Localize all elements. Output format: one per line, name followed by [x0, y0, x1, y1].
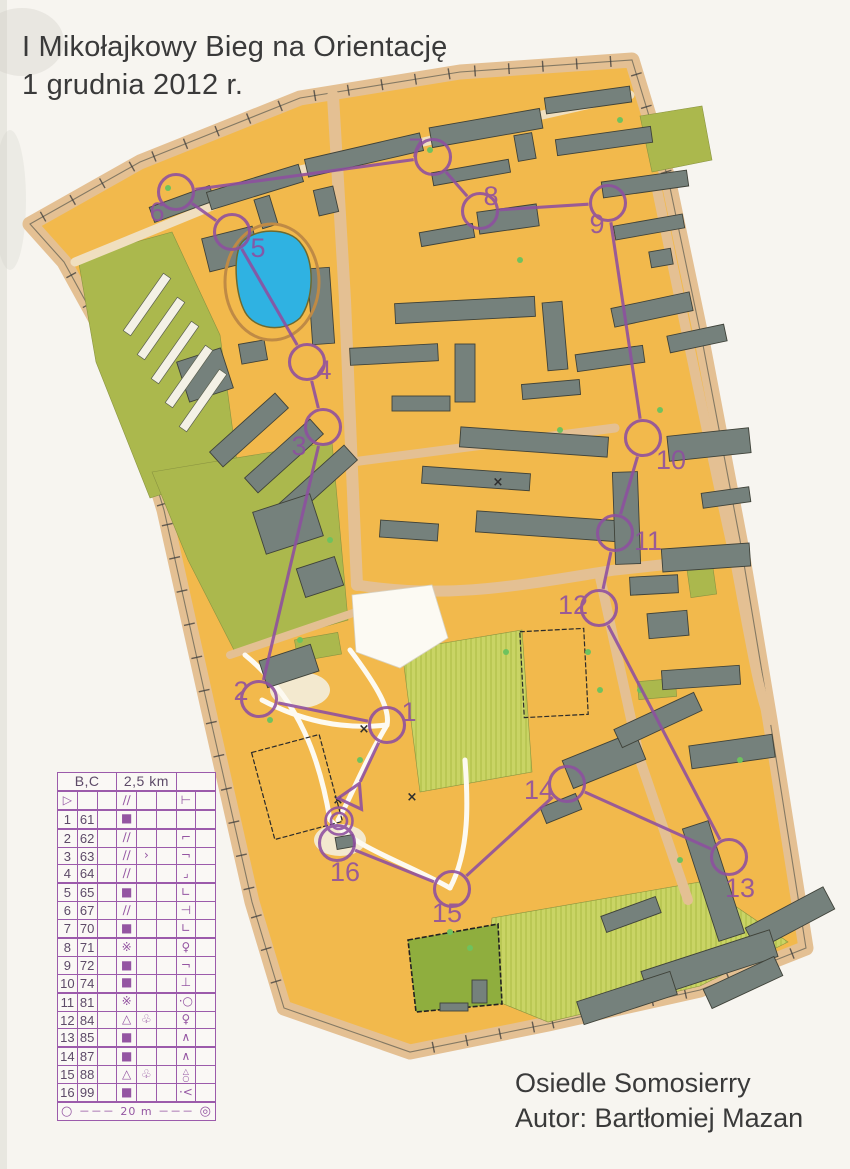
desc-cell: 4	[58, 865, 78, 883]
desc-cell: ⌐	[176, 829, 196, 847]
control-number-5: 5	[250, 233, 265, 263]
desc-cell	[137, 920, 157, 938]
desc-cell	[196, 938, 216, 956]
desc-cell: 14	[58, 1047, 78, 1065]
desc-cell	[156, 865, 176, 883]
desc-cell: 88	[77, 1066, 97, 1084]
desc-cell: 2	[58, 829, 78, 847]
desc-cell	[196, 1066, 216, 1084]
svg-text:×: ×	[359, 722, 370, 737]
desc-cell: ■	[117, 1029, 137, 1047]
control-number-14: 14	[524, 775, 554, 805]
desc-cell	[97, 1066, 117, 1084]
desc-cell	[137, 883, 157, 901]
desc-header-cell: 2,5 km	[117, 773, 176, 791]
desc-cell	[97, 1084, 117, 1102]
desc-cell: 67	[77, 902, 97, 920]
desc-cell	[156, 1029, 176, 1047]
desc-cell: 13	[58, 1029, 78, 1047]
control-number-7: 7	[408, 133, 423, 163]
desc-cell	[137, 1029, 157, 1047]
desc-cell: ⊣	[176, 902, 196, 920]
desc-cell	[137, 956, 157, 974]
control-number-4: 4	[316, 355, 331, 385]
desc-cell	[156, 883, 176, 901]
desc-cell	[196, 956, 216, 974]
credits-author: Autor: Bartłomiej Mazan	[515, 1101, 803, 1136]
desc-cell	[196, 810, 216, 829]
desc-cell	[137, 993, 157, 1011]
desc-cell: ¬	[176, 956, 196, 974]
desc-header-cell: B,C	[58, 773, 117, 791]
svg-text:×: ×	[493, 475, 504, 490]
desc-cell: ■	[117, 1084, 137, 1102]
desc-cell	[176, 810, 196, 829]
desc-cell	[156, 1047, 176, 1065]
desc-cell: ⊥	[176, 974, 196, 992]
desc-cell: 62	[77, 829, 97, 847]
desc-cell: 71	[77, 938, 97, 956]
desc-cell	[97, 993, 117, 1011]
desc-cell	[156, 920, 176, 938]
desc-cell	[196, 847, 216, 865]
control-number-9: 9	[589, 209, 604, 239]
control-number-2: 2	[233, 676, 248, 706]
desc-cell: 63	[77, 847, 97, 865]
svg-text:×: ×	[407, 790, 418, 805]
desc-cell	[196, 974, 216, 992]
desc-header-cell	[176, 773, 216, 791]
desc-cell	[97, 938, 117, 956]
desc-cell: ·<	[176, 1084, 196, 1102]
scanned-map-page: ×××× 12345678910111213141516 I Mikołajko…	[0, 0, 850, 1169]
desc-cell: △	[117, 1066, 137, 1084]
desc-cell	[196, 883, 216, 901]
desc-cell: 74	[77, 974, 97, 992]
desc-cell: ¬	[176, 847, 196, 865]
desc-cell: 87	[77, 1047, 97, 1065]
desc-cell	[196, 829, 216, 847]
desc-cell	[137, 938, 157, 956]
desc-cell	[196, 1084, 216, 1102]
desc-cell	[77, 791, 97, 810]
desc-cell: ∟	[176, 920, 196, 938]
desc-cell: 16	[58, 1084, 78, 1102]
event-title-line2: 1 grudnia 2012 r.	[22, 66, 447, 104]
desc-cell: 5	[58, 883, 78, 901]
desc-cell: 64	[77, 865, 97, 883]
desc-cell: ∧	[176, 1047, 196, 1065]
desc-cell	[97, 956, 117, 974]
desc-finish-part: ◎	[200, 1104, 212, 1119]
desc-cell	[156, 1066, 176, 1084]
map-credits: Osiedle Somosierry Autor: Bartłomiej Maz…	[515, 1066, 803, 1135]
desc-cell	[137, 865, 157, 883]
desc-cell	[97, 1029, 117, 1047]
desc-finish-row: ○－－－20 m－－－◎	[58, 1102, 216, 1120]
control-number-8: 8	[483, 181, 498, 211]
desc-cell	[97, 902, 117, 920]
desc-cell	[156, 902, 176, 920]
desc-cell	[196, 920, 216, 938]
desc-cell	[137, 974, 157, 992]
control-number-13: 13	[725, 873, 755, 903]
desc-cell: ♧	[137, 1066, 157, 1084]
control-number-12: 12	[558, 590, 588, 620]
desc-finish-part: ○	[61, 1104, 73, 1119]
control-description-sheet: B,C2,5 km▷∕∕⊢161■262∕∕⌐363∕∕›¬464∕∕⌟565■…	[57, 772, 216, 1121]
desc-cell	[97, 865, 117, 883]
desc-cell: ∕∕	[117, 829, 137, 847]
desc-cell: 9	[58, 956, 78, 974]
desc-cell	[97, 920, 117, 938]
desc-cell: 12	[58, 1011, 78, 1029]
control-number-3: 3	[291, 431, 306, 461]
desc-cell	[196, 1011, 216, 1029]
desc-finish-part: －－－	[158, 1103, 194, 1119]
desc-cell	[137, 902, 157, 920]
pond	[225, 224, 319, 340]
desc-cell: ■	[117, 974, 137, 992]
desc-cell: ♀	[176, 938, 196, 956]
desc-cell: ›	[137, 847, 157, 865]
desc-cell	[196, 791, 216, 810]
desc-cell: ※	[117, 993, 137, 1011]
desc-cell	[156, 1011, 176, 1029]
desc-cell: ※	[117, 938, 137, 956]
desc-cell: ∕∕	[117, 847, 137, 865]
control-number-6: 6	[149, 197, 164, 227]
desc-cell	[137, 1047, 157, 1065]
desc-cell	[97, 1011, 117, 1029]
desc-cell	[156, 956, 176, 974]
desc-cell	[196, 1047, 216, 1065]
control-number-1: 1	[401, 697, 416, 727]
control-number-10: 10	[656, 445, 686, 475]
desc-cell	[156, 829, 176, 847]
desc-cell	[97, 791, 117, 810]
desc-cell	[137, 829, 157, 847]
desc-cell: 99	[77, 1084, 97, 1102]
desc-cell	[97, 810, 117, 829]
desc-cell: ♧	[137, 1011, 157, 1029]
desc-cell: ∕∕	[117, 902, 137, 920]
desc-cell	[156, 974, 176, 992]
desc-cell	[97, 829, 117, 847]
desc-cell	[97, 883, 117, 901]
desc-cell	[156, 1084, 176, 1102]
desc-cell	[97, 974, 117, 992]
desc-cell: 85	[77, 1029, 97, 1047]
control-number-16: 16	[330, 857, 360, 887]
desc-cell: ∕∕	[117, 791, 137, 810]
desc-finish-part: 20 m	[120, 1105, 152, 1118]
desc-cell: ▷	[58, 791, 78, 810]
desc-cell: ∟	[176, 883, 196, 901]
desc-cell: 11	[58, 993, 78, 1011]
desc-cell: 6	[58, 902, 78, 920]
event-title-line1: I Mikołajkowy Bieg na Orientację	[22, 28, 447, 66]
desc-finish-part: －－－	[79, 1103, 115, 1119]
desc-cell	[137, 791, 157, 810]
desc-cell	[97, 847, 117, 865]
desc-cell: 10	[58, 974, 78, 992]
desc-cell	[137, 810, 157, 829]
credits-area-name: Osiedle Somosierry	[515, 1066, 803, 1101]
desc-cell: 15	[58, 1066, 78, 1084]
desc-cell	[196, 993, 216, 1011]
desc-cell: △ ○	[176, 1066, 196, 1084]
event-title: I Mikołajkowy Bieg na Orientację 1 grudn…	[22, 28, 447, 105]
desc-cell	[196, 1029, 216, 1047]
desc-cell: 84	[77, 1011, 97, 1029]
desc-cell: 7	[58, 920, 78, 938]
desc-cell	[156, 791, 176, 810]
desc-cell	[196, 865, 216, 883]
desc-cell: ■	[117, 920, 137, 938]
desc-cell: 3	[58, 847, 78, 865]
desc-cell: △	[117, 1011, 137, 1029]
control-number-11: 11	[634, 526, 662, 556]
desc-cell	[156, 810, 176, 829]
desc-cell: ∧	[176, 1029, 196, 1047]
desc-cell: ·○	[176, 993, 196, 1011]
desc-cell: ■	[117, 883, 137, 901]
control-number-15: 15	[432, 898, 462, 928]
desc-cell	[196, 902, 216, 920]
desc-cell: ■	[117, 1047, 137, 1065]
desc-cell	[156, 847, 176, 865]
desc-cell	[137, 1084, 157, 1102]
desc-cell: 8	[58, 938, 78, 956]
desc-cell	[156, 993, 176, 1011]
desc-cell	[156, 938, 176, 956]
desc-cell: 72	[77, 956, 97, 974]
desc-cell: ■	[117, 810, 137, 829]
desc-cell: ⌟	[176, 865, 196, 883]
desc-cell: 81	[77, 993, 97, 1011]
desc-cell: ⊢	[176, 791, 196, 810]
desc-cell: ■	[117, 956, 137, 974]
desc-cell: 70	[77, 920, 97, 938]
desc-cell: ∕∕	[117, 865, 137, 883]
desc-cell: ♀	[176, 1011, 196, 1029]
desc-cell: 65	[77, 883, 97, 901]
desc-cell	[97, 1047, 117, 1065]
desc-cell: 1	[58, 810, 78, 829]
desc-cell: 61	[77, 810, 97, 829]
